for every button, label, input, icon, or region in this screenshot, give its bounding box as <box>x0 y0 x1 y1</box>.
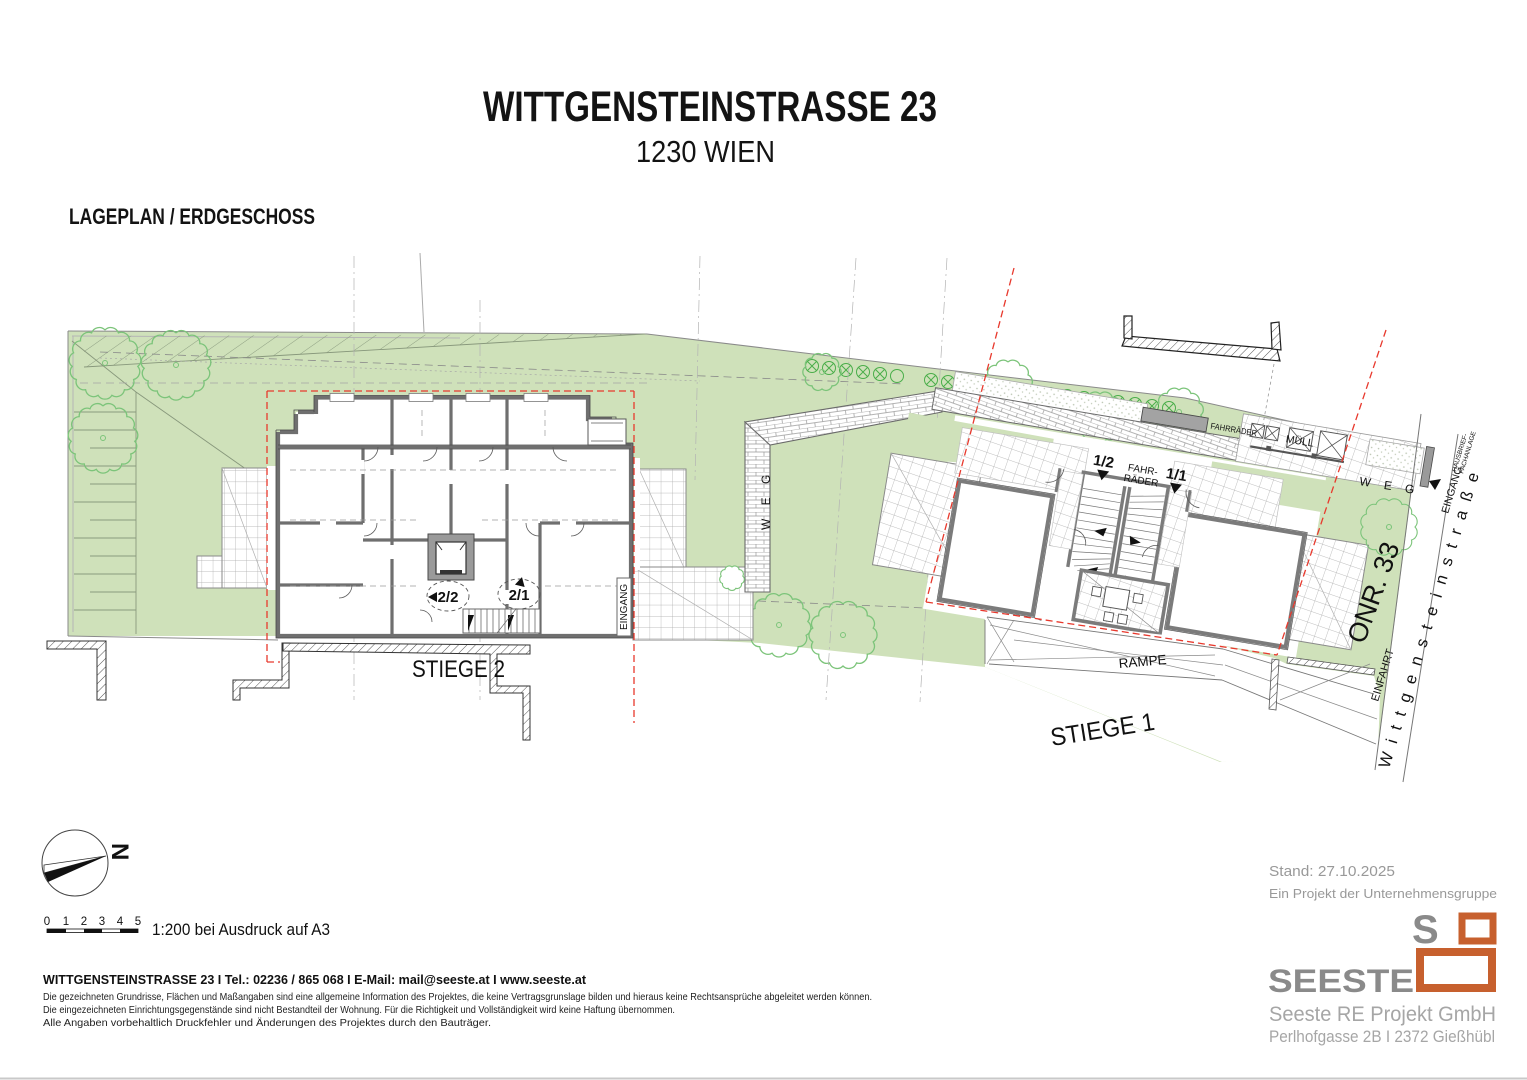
svg-text:WITTGENSTEINSTRASSE 23: WITTGENSTEINSTRASSE 23 <box>483 83 937 131</box>
svg-text:0: 0 <box>44 916 50 928</box>
svg-text:1/1: 1/1 <box>1165 465 1188 485</box>
svg-text:Die eingezeichneten Einrichtun: Die eingezeichneten Einrichtungsgegenstä… <box>43 1005 675 1016</box>
svg-text:1230 WIEN: 1230 WIEN <box>636 134 775 169</box>
svg-text:N: N <box>106 843 133 860</box>
svg-text:1:200 bei Ausdruck auf A3: 1:200 bei Ausdruck auf A3 <box>152 921 330 939</box>
svg-text:Perlhofgasse 2B I 2372 Gießhüb: Perlhofgasse 2B I 2372 Gießhübl <box>1269 1027 1495 1046</box>
svg-text:Seeste RE Projekt GmbH: Seeste RE Projekt GmbH <box>1269 1003 1496 1026</box>
svg-text:2/2: 2/2 <box>438 589 459 606</box>
svg-text:3: 3 <box>99 916 105 928</box>
svg-text:4: 4 <box>117 916 124 928</box>
svg-text:2: 2 <box>81 916 87 928</box>
svg-text:EINGANG: EINGANG <box>619 584 630 630</box>
svg-text:Stand: 27.10.2025: Stand: 27.10.2025 <box>1269 864 1395 880</box>
svg-text:5: 5 <box>135 916 141 928</box>
svg-text:Die gezeichneten Grundrisse, F: Die gezeichneten Grundrisse, Flächen und… <box>43 992 872 1003</box>
svg-text:1/2: 1/2 <box>1092 452 1115 472</box>
svg-text:Alle Angaben vorbehaltlich Dru: Alle Angaben vorbehaltlich Druckfehler u… <box>43 1017 491 1029</box>
svg-text:SEESTE: SEESTE <box>1268 963 1414 999</box>
svg-text:Ein Projekt der Unternehmensgr: Ein Projekt der Unternehmensgruppe <box>1269 887 1497 901</box>
svg-text:WITTGENSTEINSTRASSE 23 I Tel.:: WITTGENSTEINSTRASSE 23 I Tel.: 02236 / 8… <box>43 972 587 987</box>
svg-text:STIEGE 2: STIEGE 2 <box>412 656 505 683</box>
svg-text:S: S <box>1412 908 1439 952</box>
svg-text:1: 1 <box>63 916 69 928</box>
svg-text:LAGEPLAN / ERDGESCHOSS: LAGEPLAN / ERDGESCHOSS <box>69 204 315 229</box>
svg-text:2/1: 2/1 <box>509 587 530 604</box>
svg-text:W E G: W E G <box>759 470 773 530</box>
